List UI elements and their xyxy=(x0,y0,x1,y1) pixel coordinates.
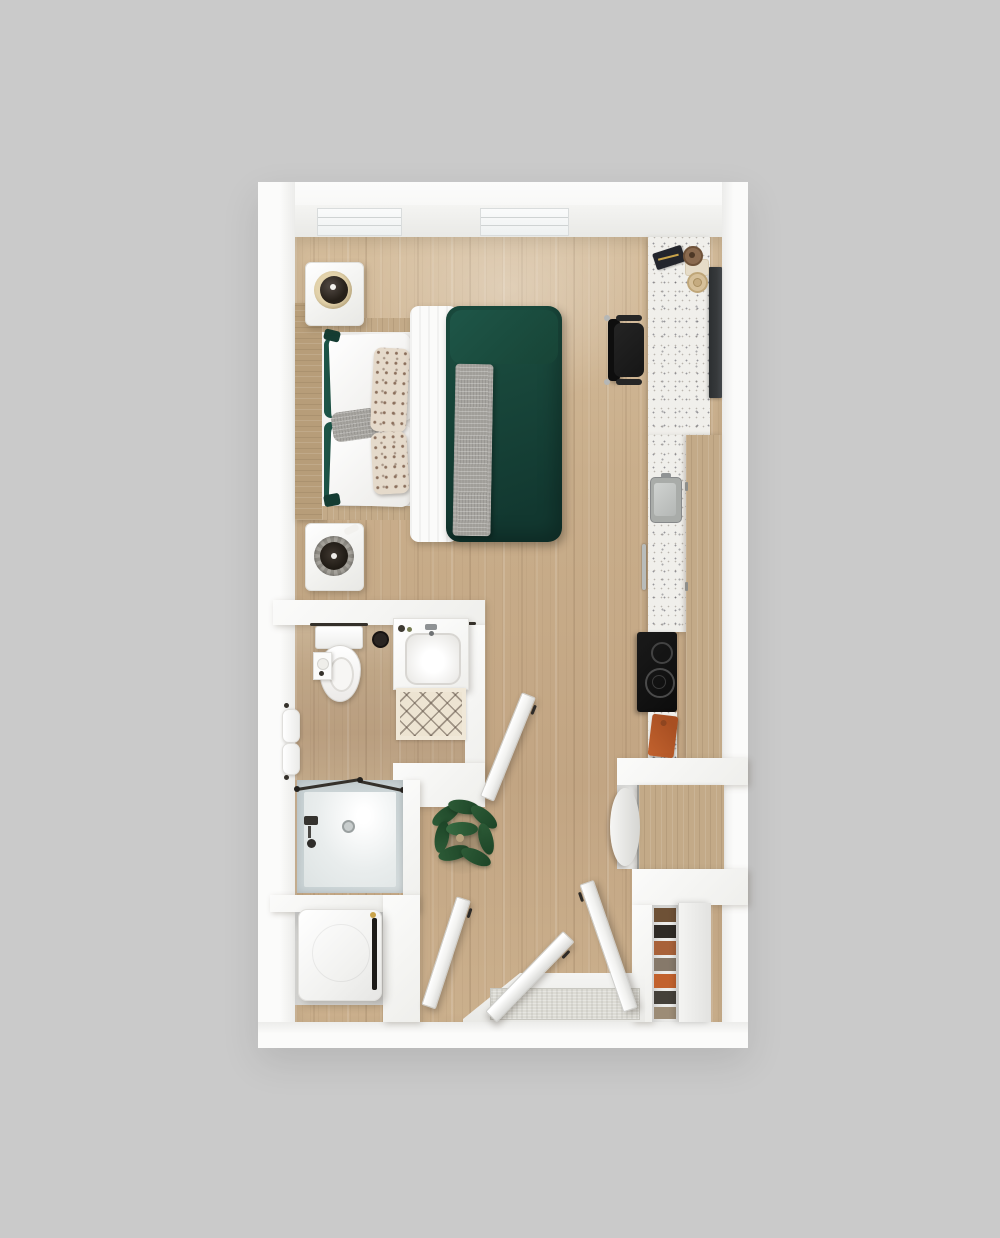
chair-armrest xyxy=(616,315,642,321)
window-mullion xyxy=(318,217,401,218)
fan-hub xyxy=(331,553,337,559)
towel-hook xyxy=(284,775,289,780)
vanity-counter xyxy=(393,618,469,690)
burner-small xyxy=(651,642,673,664)
kitchen-sink xyxy=(650,477,682,523)
vanity-basin xyxy=(405,633,461,685)
cabinet-handle xyxy=(685,482,688,491)
closet-shelf-item xyxy=(654,974,676,988)
bath-rug xyxy=(396,688,466,740)
plant-stem xyxy=(456,834,464,842)
glass-hinge xyxy=(357,777,363,783)
coffee xyxy=(689,252,695,258)
shower xyxy=(297,780,403,893)
lidded-jar xyxy=(687,272,708,293)
tall-cabinets xyxy=(686,435,722,758)
duvet-top-fold xyxy=(450,310,558,364)
shower-pipe xyxy=(308,826,311,838)
window-mullion xyxy=(481,225,568,226)
closet-shelf-item xyxy=(654,991,676,1004)
soap-item xyxy=(398,625,405,632)
chair-caster xyxy=(604,315,610,321)
washer-controls xyxy=(372,918,377,990)
fan-arm xyxy=(343,523,360,536)
kitchen-counter xyxy=(648,435,686,632)
accent-pillow xyxy=(370,431,409,495)
knit-throw xyxy=(453,364,494,537)
window-mullion xyxy=(318,225,401,226)
washer-door-seam xyxy=(312,924,370,982)
toilet-paper-holder xyxy=(313,652,332,680)
board-hole xyxy=(660,720,667,727)
lamp-top xyxy=(320,276,348,304)
laundry-wall-right xyxy=(383,895,420,1022)
refrigerator xyxy=(637,785,724,869)
vanity-faucet xyxy=(425,624,437,630)
cutting-board xyxy=(648,714,679,759)
toilet-seat-inner xyxy=(329,657,354,692)
closet-sliding-panel xyxy=(678,903,711,1022)
hand-towel xyxy=(282,709,300,743)
chair-seat xyxy=(614,323,644,377)
floor-plan xyxy=(258,182,748,1048)
gold-pen xyxy=(658,254,679,261)
bed-headboard xyxy=(295,303,325,520)
wall-right xyxy=(722,182,748,1048)
window xyxy=(317,208,402,236)
lamp-highlight xyxy=(330,284,336,290)
glass-hinge xyxy=(294,786,300,792)
window-mullion xyxy=(481,217,568,218)
window xyxy=(480,208,569,236)
paper-roll xyxy=(317,658,329,670)
fridge-door-arc xyxy=(610,788,640,866)
soap-item xyxy=(407,627,412,632)
hand-towel xyxy=(282,743,300,775)
nightstand xyxy=(305,523,364,591)
burner-inner-ring xyxy=(652,675,666,689)
jar-lid xyxy=(693,278,702,287)
dishwasher-handle xyxy=(642,544,646,590)
sink-basin xyxy=(654,483,676,516)
sink-faucet xyxy=(661,473,671,478)
chair-caster xyxy=(604,379,610,385)
closet-shelf-item xyxy=(654,941,676,955)
coffee-mug xyxy=(683,246,703,266)
closet-shelf-item xyxy=(654,1007,676,1019)
potted-plant xyxy=(418,794,504,890)
faucet-knob xyxy=(429,631,434,636)
scene-background xyxy=(0,0,1000,1238)
burner-large xyxy=(645,668,675,698)
toilet-brush xyxy=(372,631,389,648)
fridge-top-wall xyxy=(617,758,748,785)
wall-bottom xyxy=(258,1022,748,1048)
closet-shelf-item xyxy=(654,908,676,922)
washer-knob xyxy=(370,912,376,918)
holder-mount xyxy=(319,671,324,676)
fridge-bottom-wall xyxy=(632,869,748,905)
chair-armrest xyxy=(616,379,642,385)
nightstand xyxy=(305,262,364,326)
cooktop xyxy=(637,632,677,712)
shower-valve xyxy=(307,839,316,848)
closet-interior xyxy=(652,905,710,1022)
closet-shelf-item xyxy=(654,925,676,938)
shower-base xyxy=(304,792,396,887)
shower-drain xyxy=(342,820,355,833)
washer-dryer xyxy=(298,909,382,1001)
desk-chair xyxy=(608,315,648,385)
closet-shelf-item xyxy=(654,958,676,971)
accent-pillow xyxy=(370,347,410,433)
shower-head xyxy=(304,816,318,825)
tv-screen xyxy=(709,267,722,398)
towel-hook xyxy=(284,703,289,708)
cabinet-handle xyxy=(685,582,688,591)
fan-center xyxy=(320,542,348,570)
